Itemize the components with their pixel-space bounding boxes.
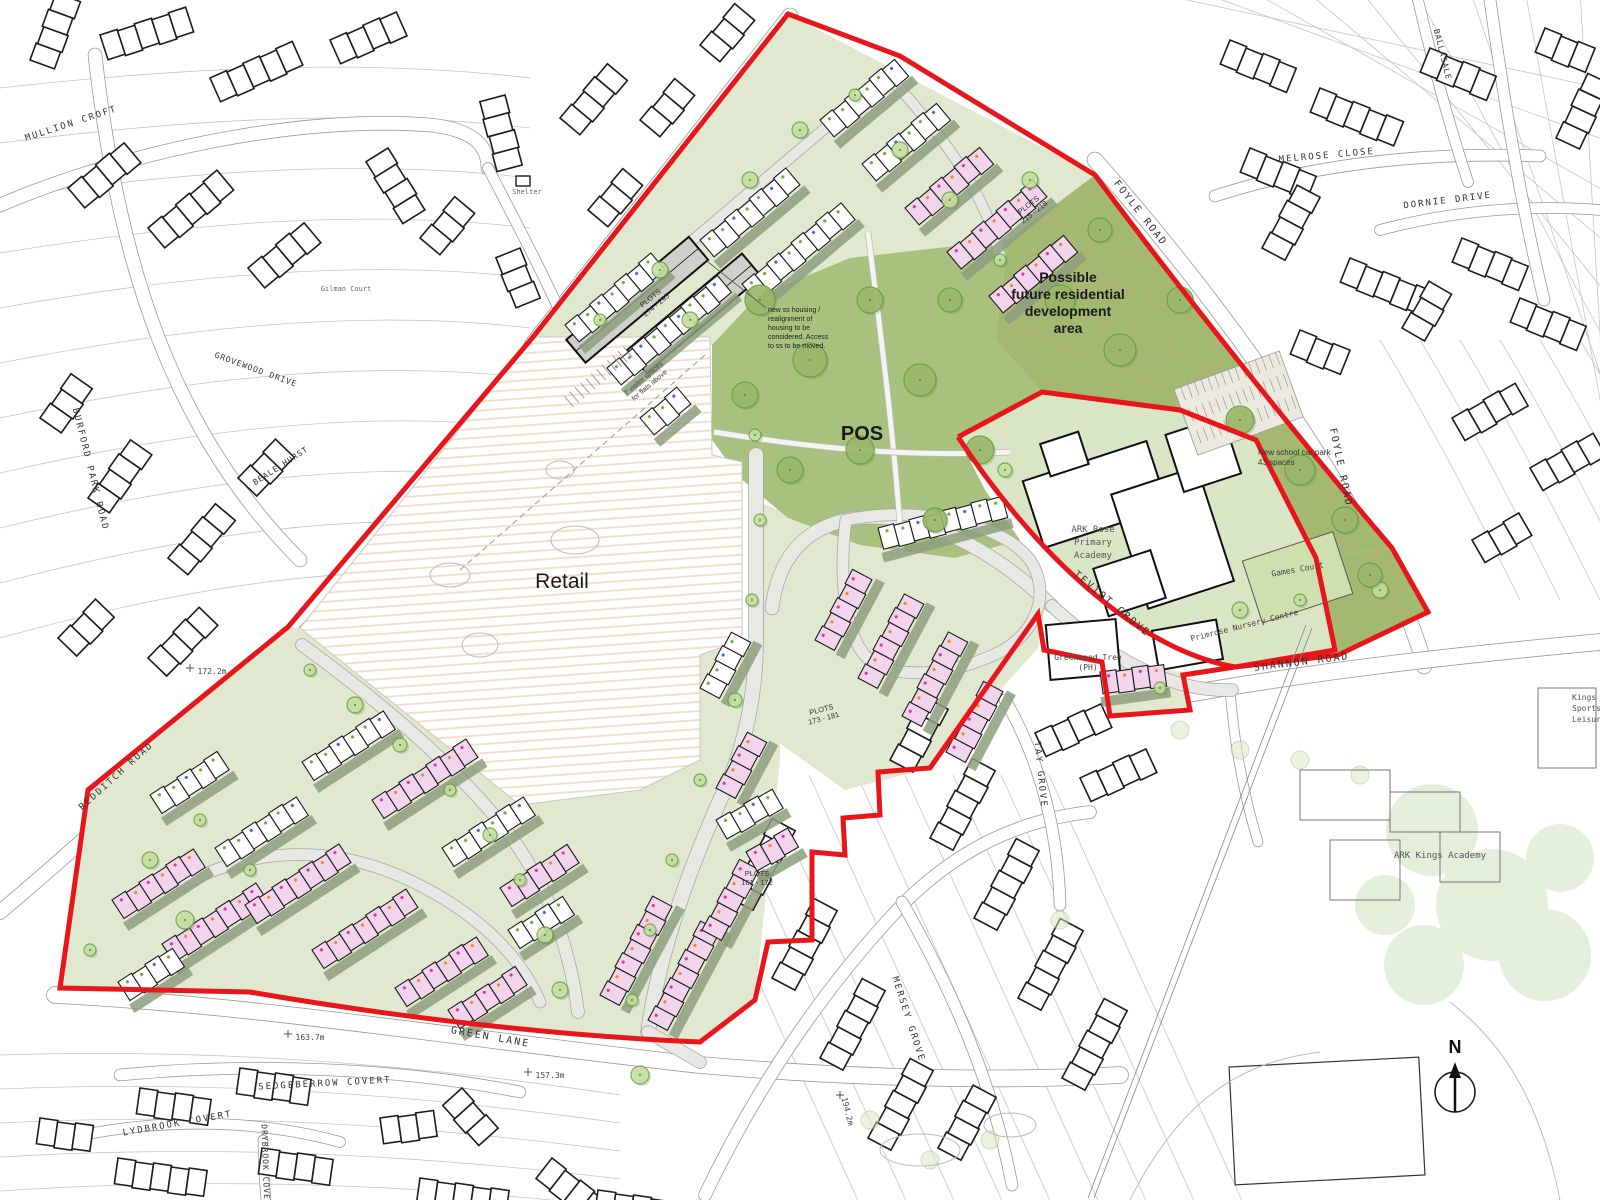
retail-area-label: Retail bbox=[535, 570, 589, 593]
gilman-court-label: Gilman Court bbox=[321, 285, 372, 293]
spot-height-157: 157.3m bbox=[536, 1071, 565, 1080]
spot-height-163: 163.7m bbox=[296, 1033, 325, 1042]
shelter-building bbox=[516, 176, 530, 186]
ark-kings-academy-label: ARK Kings Academy bbox=[1394, 851, 1487, 861]
site-plan-map: RetailPOSPossiblefuture residentialdevel… bbox=[0, 0, 1600, 1200]
ark-rose-academy-label: ARK RosePrimaryAcademy bbox=[1071, 525, 1114, 561]
pos-area-label: POS bbox=[841, 423, 883, 445]
leisure-centre-label: Kings NortonSports andLeisure Centre bbox=[1572, 693, 1600, 724]
north-label: N bbox=[1449, 1037, 1462, 1057]
spot-height-172: 172.2m bbox=[198, 667, 227, 676]
shelter-label: Shelter bbox=[512, 188, 542, 196]
plots-161-172-label: PLOTS161 - 172 bbox=[741, 869, 773, 887]
site-masterplan-page: RetailPOSPossiblefuture residentialdevel… bbox=[0, 0, 1600, 1200]
